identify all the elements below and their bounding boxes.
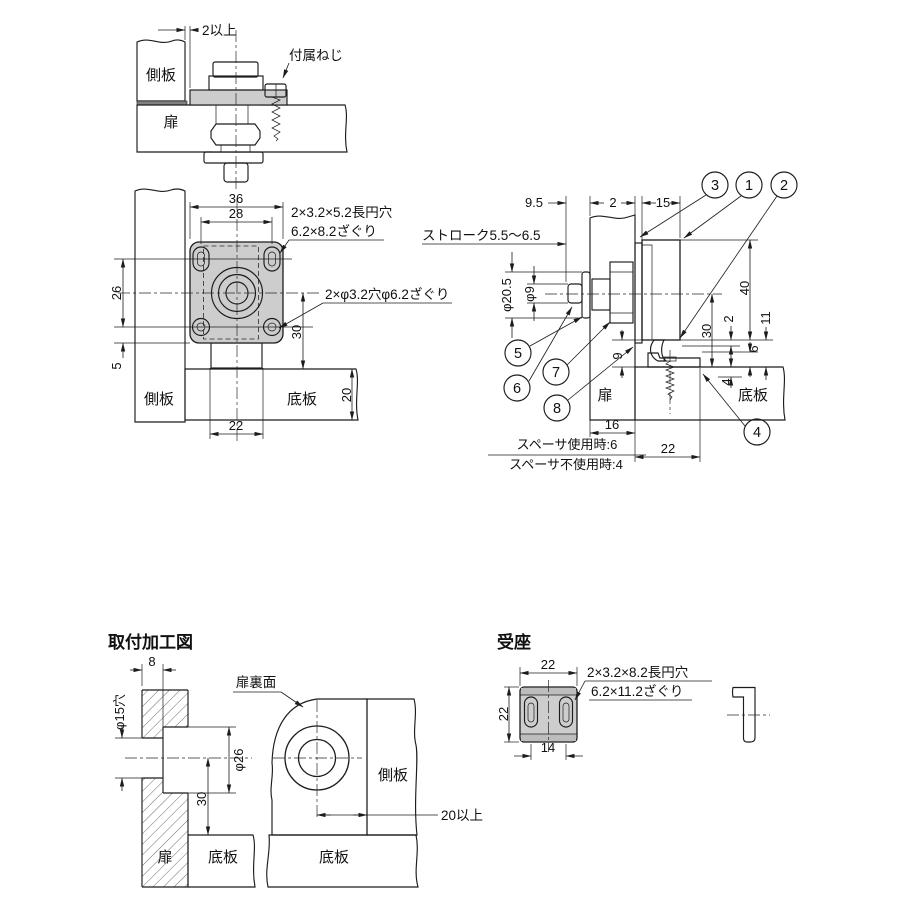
bottom-panel-label-side: 底板 bbox=[738, 386, 768, 404]
dim-14: 14 bbox=[541, 740, 555, 755]
dim-15: 15 bbox=[656, 195, 670, 210]
push-knob-side bbox=[568, 284, 582, 303]
dim-2-top: 2 bbox=[609, 195, 616, 210]
callout-7: 7 bbox=[543, 359, 569, 385]
dia-26: φ26 bbox=[231, 749, 246, 772]
dim-30-mounting: 30 bbox=[194, 792, 209, 806]
dim-22-width: 22 bbox=[541, 657, 555, 672]
dim-11: 11 bbox=[758, 311, 773, 325]
dim-6: 6 bbox=[746, 345, 761, 352]
stroke-note: ストローク5.5～6.5 bbox=[422, 228, 541, 243]
side-view: 9.5 2 15 ストローク5.5～6.5 φ20.5 φ9 40 30 bbox=[422, 172, 797, 472]
svg-text:2: 2 bbox=[780, 178, 788, 194]
dim-22-side: 22 bbox=[661, 441, 675, 456]
slot-note-line2: 6.2×8.2ざぐり bbox=[291, 223, 377, 239]
hole-note: 2×φ3.2穴φ6.2ざぐり bbox=[325, 286, 449, 302]
bottom-panel-2-label: 底板 bbox=[319, 848, 349, 866]
dim-5: 5 bbox=[109, 362, 124, 369]
mounting-diagram-view: 取付加工図 8 φ15穴 φ26 30 扉 底板 bbox=[108, 632, 483, 887]
bottom-panel-label-front: 底板 bbox=[287, 390, 317, 408]
dim-16: 16 bbox=[605, 417, 619, 432]
hole-15-label: φ15穴 bbox=[112, 694, 127, 730]
included-screw-label: 付属ねじ bbox=[289, 48, 343, 63]
dim-20: 20 bbox=[339, 388, 354, 402]
catch-plate-view: 受座 22 22 14 2×3.2×8.2長円穴 6.2×11.2ざぐり bbox=[496, 632, 770, 760]
mounting-diagram-title: 取付加工図 bbox=[108, 632, 193, 652]
svg-text:3: 3 bbox=[711, 178, 719, 194]
latch-drawing-svg: 2以上 付属ねじ 側板 扉 36 bbox=[0, 0, 900, 900]
svg-text:8: 8 bbox=[553, 401, 561, 417]
slot-note-line1: 2×3.2×5.2長円穴 bbox=[291, 205, 392, 220]
svg-text:5: 5 bbox=[514, 346, 522, 362]
dim-30-front: 30 bbox=[289, 325, 304, 339]
svg-text:1: 1 bbox=[745, 178, 753, 194]
spacer-not-used-note: スペーサ不使用時:4 bbox=[509, 457, 623, 472]
bottom-panel-1-label: 底板 bbox=[208, 848, 238, 866]
side-panel bbox=[135, 189, 185, 422]
callout-8: 8 bbox=[544, 395, 570, 421]
svg-text:7: 7 bbox=[552, 365, 560, 381]
dia-9: φ9 bbox=[522, 286, 537, 302]
callout-4: 4 bbox=[744, 419, 770, 445]
top-section-view: 2以上 付属ねじ 側板 扉 bbox=[137, 23, 347, 190]
technical-drawing-page: 2以上 付属ねじ 側板 扉 36 bbox=[0, 0, 900, 900]
door-label-mounting: 扉 bbox=[157, 849, 172, 866]
dim-9-5: 9.5 bbox=[525, 195, 543, 210]
latch-face-plate bbox=[190, 242, 283, 343]
callout-1: 1 bbox=[736, 172, 762, 198]
door-back-label: 扉裏面 bbox=[236, 675, 277, 690]
door-label-side: 扉 bbox=[597, 387, 612, 404]
dia-20-5: φ20.5 bbox=[499, 278, 514, 312]
side-panel-label: 側板 bbox=[146, 66, 176, 84]
catch-slot-note-line1: 2×3.2×8.2長円穴 bbox=[587, 665, 688, 680]
min-20-label: 20以上 bbox=[441, 808, 483, 823]
callout-5: 5 bbox=[505, 340, 531, 366]
dim-26: 26 bbox=[109, 286, 124, 300]
dim-9-side: 9 bbox=[610, 352, 625, 359]
dim-22-height: 22 bbox=[496, 707, 511, 721]
bottom-panel bbox=[185, 369, 358, 420]
latch-body-upper bbox=[213, 62, 258, 77]
dim-2-right: 2 bbox=[721, 315, 736, 322]
hook-bracket bbox=[211, 343, 262, 368]
catch-slot-note-line2: 6.2×11.2ざぐり bbox=[591, 683, 683, 699]
bumper-strip bbox=[137, 101, 187, 105]
callout-3: 3 bbox=[702, 172, 728, 198]
catch-title: 受座 bbox=[497, 632, 531, 652]
svg-text:6: 6 bbox=[513, 381, 521, 397]
door-label: 扉 bbox=[163, 114, 178, 131]
callout-2: 2 bbox=[771, 172, 797, 198]
side-panel-label-back: 側板 bbox=[378, 766, 408, 784]
spacer-used-note: スペーサ使用時:6 bbox=[517, 437, 618, 452]
svg-text:4: 4 bbox=[753, 425, 761, 441]
dim-28: 28 bbox=[229, 206, 243, 221]
side-panel-label-front: 側板 bbox=[144, 390, 174, 408]
callout-6: 6 bbox=[504, 375, 530, 401]
gap-min-label: 2以上 bbox=[202, 23, 237, 38]
dim-8: 8 bbox=[148, 654, 155, 669]
dim-4: 4 bbox=[719, 378, 734, 385]
knob-flange bbox=[204, 152, 263, 163]
front-view: 36 28 26 5 30 20 22 2×3.2×5.2長円穴 6.2×8.2… bbox=[109, 189, 452, 443]
dim-40: 40 bbox=[737, 281, 752, 295]
dim-30-side: 30 bbox=[699, 324, 714, 338]
dim-22-front: 22 bbox=[229, 418, 243, 433]
latch-body-side bbox=[642, 240, 680, 340]
spacer bbox=[635, 243, 642, 343]
dim-36: 36 bbox=[229, 191, 243, 206]
flange-side bbox=[582, 272, 590, 318]
